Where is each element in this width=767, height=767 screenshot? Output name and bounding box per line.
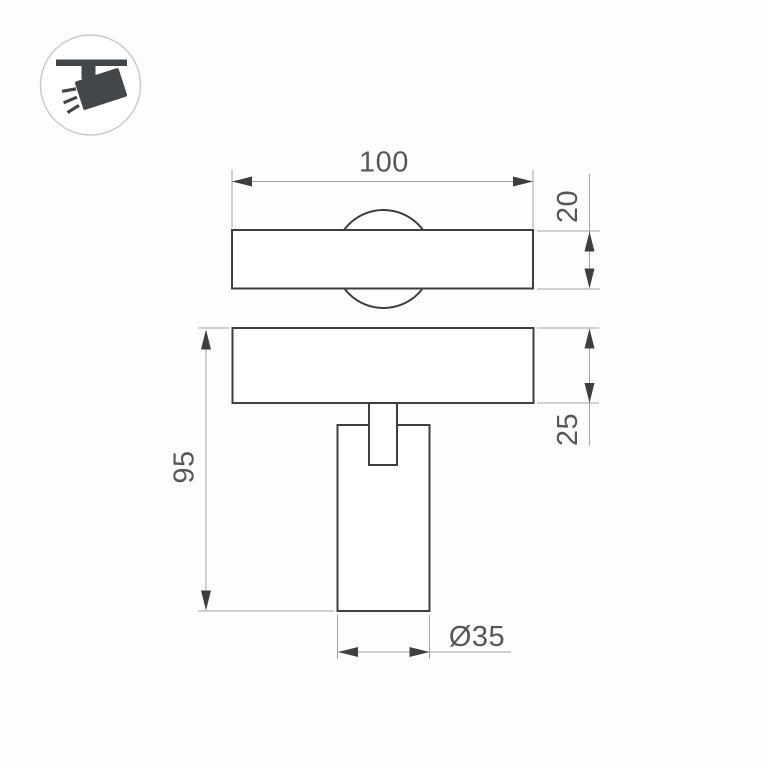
mount-bar-front-view: [233, 328, 534, 403]
arrowhead-down-icon: [585, 383, 595, 403]
track-light-icon: [41, 35, 141, 135]
arrowhead-down-icon: [201, 591, 211, 611]
arrowhead-up-icon: [585, 329, 595, 349]
front-view: [233, 328, 534, 611]
arrowhead-left-icon: [232, 177, 252, 187]
dim-total-height-label: 95: [169, 450, 201, 483]
dim-diameter-label: Ø35: [449, 621, 505, 653]
dim-width-label: 100: [359, 147, 409, 179]
arrowhead-up-icon: [585, 232, 595, 252]
dimension-drawing-canvas: 100 20 25 95 Ø35: [0, 0, 767, 767]
arrowhead-right-icon: [410, 647, 430, 657]
dim-track-thickness-label: 20: [552, 190, 584, 223]
swivel-stem: [369, 403, 397, 465]
arrowhead-up-icon: [201, 330, 211, 350]
arrowhead-down-icon: [585, 269, 595, 289]
arrowhead-left-icon: [338, 647, 358, 657]
track-bar-top-view: [232, 230, 533, 289]
arrowhead-right-icon: [513, 177, 533, 187]
top-view: [232, 210, 533, 308]
dim-base-height-label: 25: [552, 413, 584, 446]
technical-drawing: 100 20 25 95 Ø35: [0, 0, 767, 767]
